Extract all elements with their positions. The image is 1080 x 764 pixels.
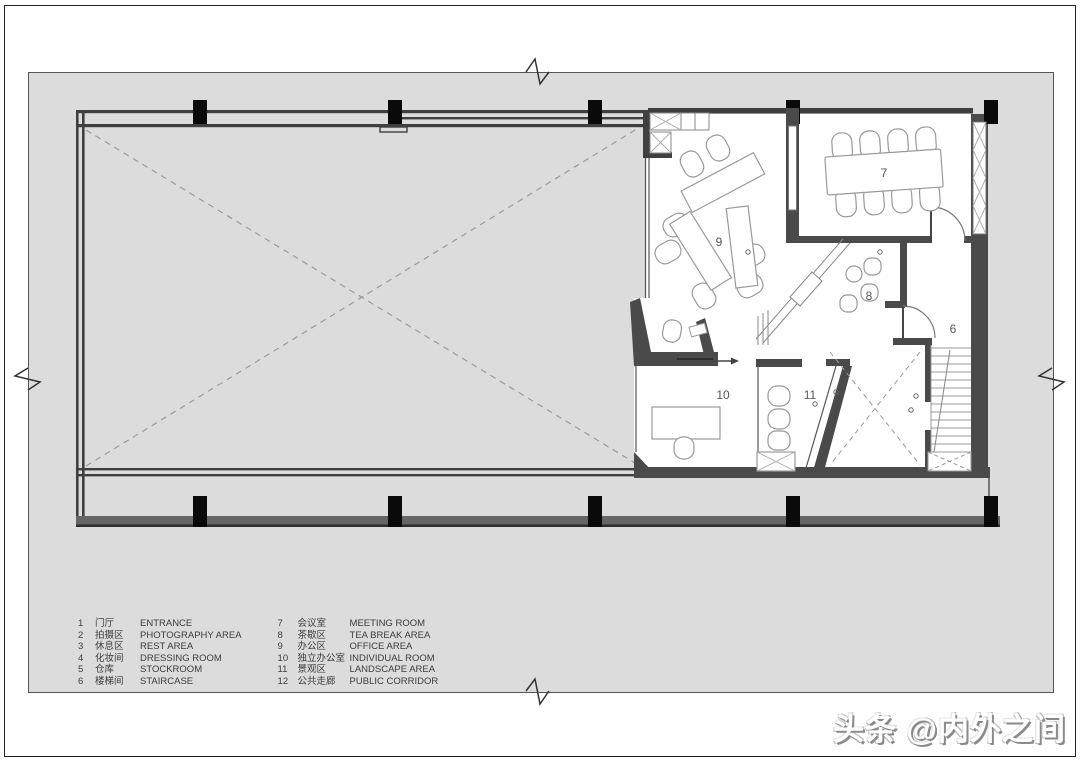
legend-en: MEETING ROOM (350, 618, 425, 630)
legend-num: 10 (278, 653, 298, 665)
legend-cn: 化妆间 (95, 653, 140, 665)
room-label-11: 11 (804, 388, 817, 402)
room-label-6: 6 (950, 322, 957, 336)
void-cross-dashed (86, 127, 640, 466)
legend-num: 9 (278, 641, 298, 653)
break-mark-bottom (526, 679, 549, 704)
legend-num: 6 (78, 676, 95, 688)
legend-num: 3 (78, 641, 95, 653)
floor-plan-page: 6 7 8 9 10 11 1门厅ENTRANCE2拍摄区PHOTOGRAPHY… (0, 0, 1080, 764)
legend-num: 12 (278, 676, 298, 688)
legend-en: REST AREA (140, 641, 193, 653)
legend-row-5: 5仓库STOCKROOM (78, 664, 242, 676)
legend-row-8: 8茶歇区TEA BREAK AREA (278, 630, 439, 642)
legend-cn: 公共走廊 (298, 676, 350, 688)
legend-num: 5 (78, 664, 95, 676)
legend-cn: 会议室 (298, 618, 350, 630)
legend-row-6: 6楼梯间STAIRCASE (78, 676, 242, 688)
legend-num: 1 (78, 618, 95, 630)
legend-en: OFFICE AREA (350, 641, 413, 653)
legend-cn: 景观区 (298, 664, 350, 676)
legend-num: 4 (78, 653, 95, 665)
break-mark-right (1039, 368, 1064, 390)
legend-cn: 茶歇区 (298, 630, 350, 642)
legend-en: DRESSING ROOM (140, 653, 222, 665)
legend-num: 11 (278, 664, 298, 676)
legend-en: STAIRCASE (140, 676, 193, 688)
legend-num: 7 (278, 618, 298, 630)
legend-num: 8 (278, 630, 298, 642)
legend-row-3: 3休息区REST AREA (78, 641, 242, 653)
legend-en: INDIVIDUAL ROOM (350, 653, 435, 665)
legend-en: LANDSCAPE AREA (350, 664, 436, 676)
room-label-7: 7 (881, 166, 888, 180)
legend: 1门厅ENTRANCE2拍摄区PHOTOGRAPHY AREA3休息区REST … (78, 618, 438, 687)
bottom-wall-band (76, 516, 1000, 527)
room-label-9: 9 (716, 235, 723, 249)
legend-row-4: 4化妆间DRESSING ROOM (78, 653, 242, 665)
legend-row-1: 1门厅ENTRANCE (78, 618, 242, 630)
break-mark-left (15, 368, 40, 390)
legend-row-12: 12公共走廊PUBLIC CORRIDOR (278, 676, 439, 688)
legend-cn: 休息区 (95, 641, 140, 653)
legend-row-10: 10独立办公室INDIVIDUAL ROOM (278, 653, 439, 665)
legend-en: TEA BREAK AREA (350, 630, 431, 642)
legend-row-9: 9办公区OFFICE AREA (278, 641, 439, 653)
legend-en: PHOTOGRAPHY AREA (140, 630, 242, 642)
watermark: 头条 @内外之间 (833, 704, 1066, 749)
legend-cn: 拍摄区 (95, 630, 140, 642)
room-label-8: 8 (866, 289, 873, 303)
legend-row-2: 2拍摄区PHOTOGRAPHY AREA (78, 630, 242, 642)
legend-cn: 独立办公室 (298, 653, 350, 665)
legend-row-11: 11景观区LANDSCAPE AREA (278, 664, 439, 676)
legend-col-1: 1门厅ENTRANCE2拍摄区PHOTOGRAPHY AREA3休息区REST … (78, 618, 242, 687)
break-mark-top (526, 59, 549, 84)
legend-cn: 办公区 (298, 641, 350, 653)
legend-col-2: 7会议室MEETING ROOM8茶歇区TEA BREAK AREA9办公区OF… (278, 618, 439, 687)
room-label-10: 10 (716, 388, 730, 402)
legend-cn: 门厅 (95, 618, 140, 630)
right-facade-window (973, 122, 986, 234)
legend-cn: 楼梯间 (95, 676, 140, 688)
meeting-room-wall-window (786, 108, 799, 243)
legend-en: ENTRANCE (140, 618, 192, 630)
legend-en: PUBLIC CORRIDOR (350, 676, 439, 688)
legend-num: 2 (78, 630, 95, 642)
legend-en: STOCKROOM (140, 664, 202, 676)
legend-cn: 仓库 (95, 664, 140, 676)
legend-row-7: 7会议室MEETING ROOM (278, 618, 439, 630)
